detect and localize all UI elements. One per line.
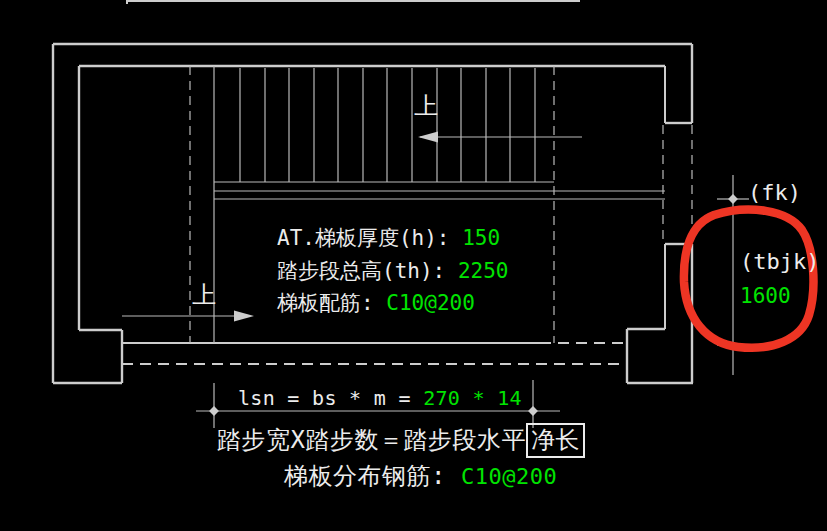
info-value: 150 [462, 226, 500, 250]
tbjk-label: (tbjk) [740, 251, 819, 273]
tread-lines [240, 68, 535, 182]
formula-value: 270 * 14 [423, 386, 522, 410]
up-arrow-bottom [122, 311, 254, 322]
caption-line: 踏步宽X踏步数＝踏步段水平净长 [217, 428, 585, 452]
fk-label: (fk) [748, 182, 801, 204]
red-annotation-circle [684, 210, 814, 348]
info-value: C10@200 [386, 291, 475, 315]
bottom-right-block [627, 329, 693, 383]
info-row-rebar: 梯板配筋: C10@200 [277, 287, 508, 320]
info-value: 2250 [458, 259, 509, 283]
info-label: 梯板配筋: [277, 291, 374, 315]
info-row-thickness: AT.梯板厚度(h): 150 [277, 222, 508, 255]
floor-slab-lines [122, 343, 625, 364]
length-formula: lsn = bs * m = 270 * 14 [238, 388, 522, 408]
bottom-left-block [53, 330, 122, 383]
up-label-bottom: 上 [192, 283, 217, 307]
up-arrow-top [418, 132, 582, 143]
cad-stair-plan-canvas: 上 上 AT.梯板厚度(h): 150 踏步段总高(th): 2250 梯板配筋… [0, 0, 827, 531]
caption-boxed-term: 净长 [526, 423, 585, 458]
top-edge-line [126, 0, 580, 4]
info-row-total-height: 踏步段总高(th): 2250 [277, 255, 508, 288]
formula-label: lsn = bs * m = [238, 386, 411, 410]
info-label: 踏步段总高(th): [277, 259, 445, 283]
rebar-value: C10@200 [461, 464, 557, 489]
rebar-line: 梯板分布钢筋: C10@200 [284, 464, 557, 488]
rebar-label: 梯板分布钢筋: [284, 462, 446, 490]
info-label: AT.梯板厚度(h): [277, 226, 450, 250]
tbjk-value: 1600 [740, 286, 791, 307]
wall-outline [53, 44, 692, 383]
stair-info-panel: AT.梯板厚度(h): 150 踏步段总高(th): 2250 梯板配筋: C1… [277, 222, 508, 320]
up-label-top: 上 [414, 94, 439, 118]
caption-text: 踏步宽X踏步数＝踏步段水平 [217, 426, 526, 454]
